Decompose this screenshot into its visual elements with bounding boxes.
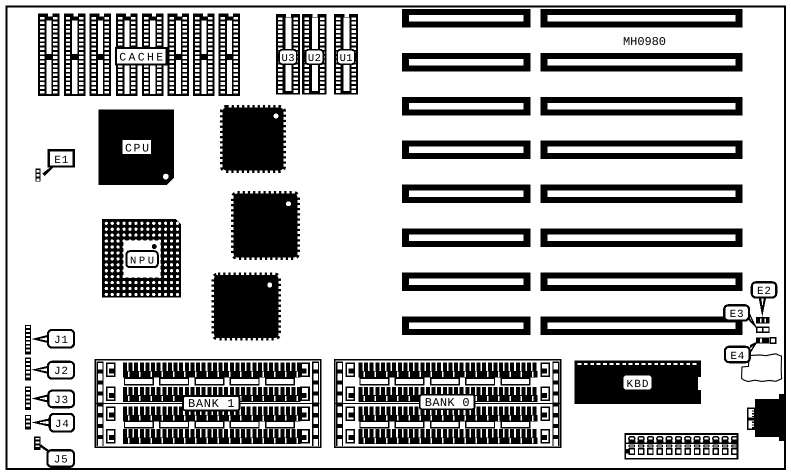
svg-text:J2: J2 (54, 366, 68, 378)
svg-text:U1: U1 (340, 53, 353, 65)
svg-text:E3: E3 (730, 309, 744, 321)
svg-text:BANK 0: BANK 0 (425, 396, 470, 410)
svg-text:KBD: KBD (627, 379, 649, 391)
svg-text:J1: J1 (54, 335, 68, 347)
svg-text:U3: U3 (282, 53, 295, 65)
svg-text:CACHE: CACHE (119, 51, 163, 64)
svg-text:U2: U2 (308, 53, 321, 65)
svg-text:NPU: NPU (130, 255, 154, 267)
svg-text:BANK 1: BANK 1 (188, 397, 235, 411)
svg-text:J5: J5 (54, 454, 68, 466)
svg-text:MH0980: MH0980 (623, 35, 666, 49)
svg-text:E1: E1 (54, 155, 68, 167)
svg-text:CPU: CPU (125, 143, 149, 156)
svg-text:E4: E4 (730, 351, 744, 363)
svg-text:J4: J4 (55, 419, 69, 431)
svg-text:J3: J3 (54, 395, 68, 407)
svg-text:E2: E2 (757, 286, 771, 298)
